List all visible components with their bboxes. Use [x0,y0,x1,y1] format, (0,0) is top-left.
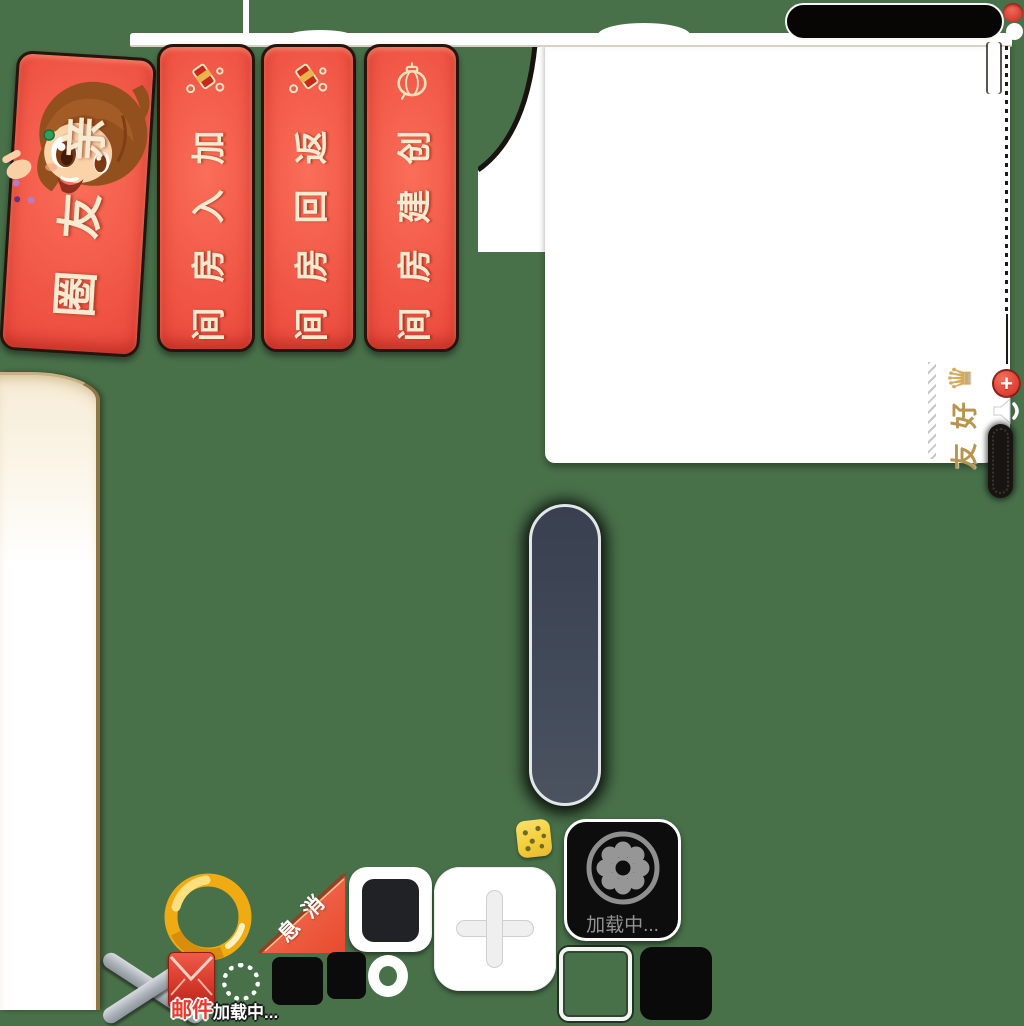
return-room-banner-button[interactable]: 返回房间 [261,44,356,352]
plus-icon [486,890,503,968]
friends-list-panel: ♛ 好友 [545,40,1010,463]
dotted-spinner-icon [222,963,260,1001]
black-square-tile [640,947,712,1020]
snow-bump [290,30,350,35]
sprite-sheet-stage: 亲友圈 加入房间 返回房间 [0,0,1024,1024]
outlined-square-frame [559,947,632,1021]
create-room-banner-button[interactable]: 创建房间 [364,44,459,352]
scroll-paper-strip [0,372,100,1010]
speaker-icon [990,396,1022,426]
scrollbar-track[interactable] [529,504,601,806]
lantern-icon [388,61,436,101]
framed-dark-card [349,867,432,952]
red-badge-dot [1003,3,1023,22]
loading-toast-label: 加载中... [586,910,659,937]
panel-corner-wedge [478,44,546,252]
flower-wheel-loading-icon [583,828,663,908]
dice-icon[interactable] [515,818,553,858]
black-square-tile [327,952,366,999]
dotted-hanging-line [1005,46,1008,314]
friend-circle-banner-label: 亲友圈 [48,104,107,328]
white-dot [1006,23,1023,40]
loading-text: 加载中... [213,998,283,1023]
dice-pips [515,818,553,858]
join-room-banner-label: 加入房间 [189,123,223,349]
rope-knot-capsule [988,424,1013,498]
friend-circle-banner-button[interactable]: 亲友圈 [0,50,157,358]
white-strip-fragment [988,42,1000,94]
white-ring-icon [368,955,408,997]
create-room-banner-label: 创建房间 [395,123,429,349]
dark-square [362,879,419,942]
mail-button[interactable]: 邮件 [168,948,216,1024]
nameplate-pill [785,3,1004,40]
add-card-button[interactable] [434,867,556,991]
return-room-banner-label: 返回房间 [292,123,326,349]
join-room-banner-button[interactable]: 加入房间 [157,44,255,352]
firecracker-icon [281,61,337,101]
plus-icon: + [1000,373,1013,395]
zigzag-separator [928,362,936,459]
loading-toast: 加载中... [564,819,681,941]
add-friend-button[interactable]: + [992,369,1021,398]
tab-friends[interactable]: 好友 [944,396,980,476]
crown-icon: ♛ [943,358,979,398]
hanging-line [1006,314,1008,364]
snow-bump [598,23,690,35]
firecracker-icon [178,61,234,101]
white-strip-fragment [243,0,249,36]
